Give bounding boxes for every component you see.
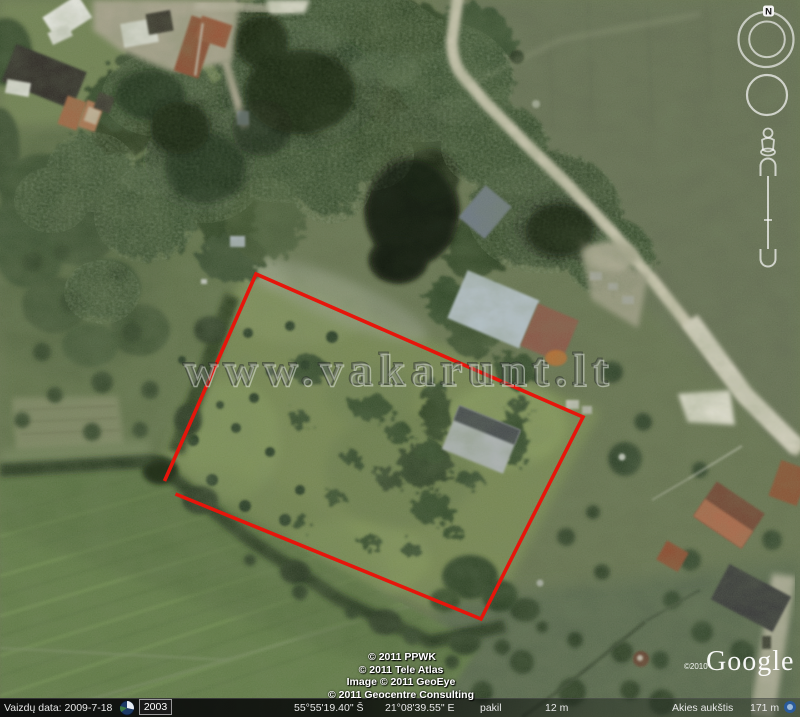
svg-text:N: N [765, 7, 772, 18]
svg-text:www.vakarunt.lt: www.vakarunt.lt [183, 343, 608, 394]
